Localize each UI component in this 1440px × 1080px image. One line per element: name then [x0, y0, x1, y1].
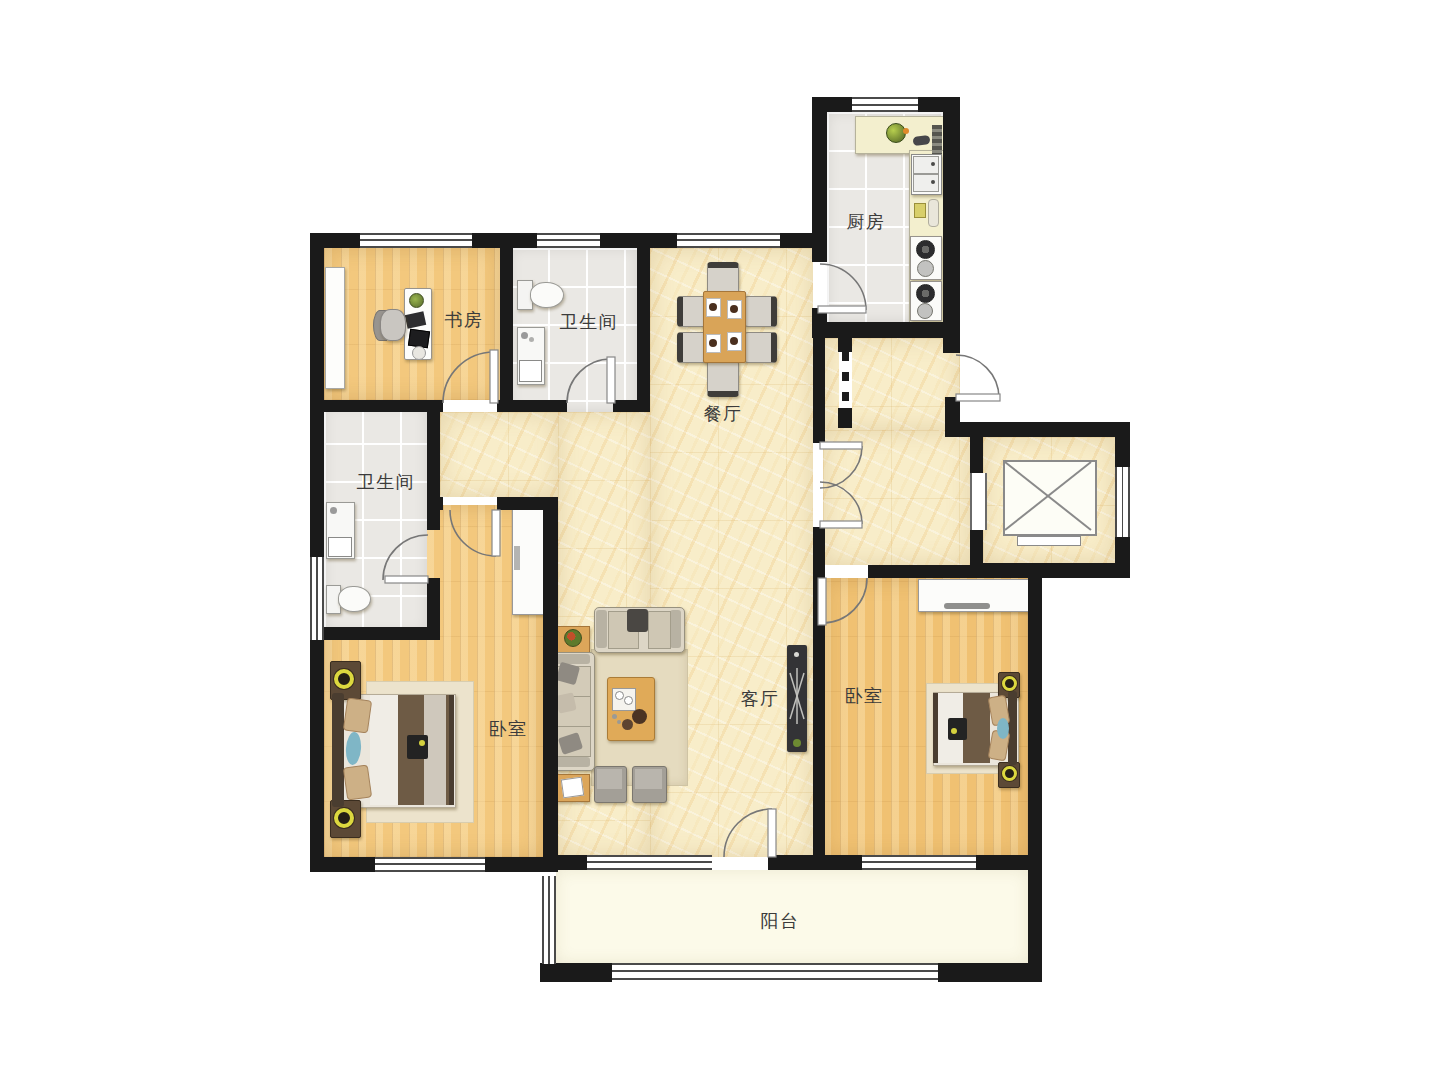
window-bathroom-left: [310, 557, 324, 640]
wall: [540, 963, 612, 982]
window-study: [360, 233, 472, 248]
lamp-icon-1: [334, 669, 354, 689]
stove-burner-dark-1: [916, 240, 935, 259]
dining-chair-right-2: [744, 332, 777, 363]
wall: [637, 248, 650, 412]
lamp-icon-3: [1002, 676, 1017, 691]
room-label-bathroom-top: 卫生间: [560, 310, 619, 334]
tea-cup-1: [615, 691, 624, 700]
wall: [485, 857, 558, 872]
toilet-bowl-top-bath: [530, 282, 564, 308]
book-icon: [561, 777, 584, 799]
floor-plan: 书房 卫生间 餐厅 厨房 卫生间 卧室 客厅 卧室 阳台: [0, 0, 1440, 1080]
window-bedroom-right: [862, 855, 976, 870]
sofa-pillow-2: [555, 692, 576, 713]
kitchen-sink-basin-1: [913, 156, 939, 174]
window-dining: [677, 233, 780, 248]
room-label-bedroom-right: 卧室: [845, 684, 884, 708]
table-dot-2: [617, 720, 621, 724]
sofa-top-cushion-2: [648, 611, 671, 649]
wall: [768, 855, 862, 870]
bed-left-pillow-2: [343, 764, 372, 800]
wall: [497, 400, 567, 412]
window-bathroom-top: [537, 233, 600, 248]
wardrobe-left-handle: [514, 546, 520, 570]
wall: [943, 97, 960, 353]
wall: [427, 497, 443, 510]
ottoman-2-top: [635, 769, 662, 789]
wall: [970, 437, 983, 473]
kitchen-board-icon: [928, 199, 939, 227]
kitchen-sink-basin-2: [913, 174, 939, 192]
opening-elevator-hall: [970, 473, 987, 530]
bed-right-blanket: [963, 693, 990, 763]
bed-left-headboard: [332, 693, 344, 807]
bowl-2: [730, 305, 738, 313]
kitchen-sink-dot-1: [931, 162, 935, 166]
lamp-icon-4: [1002, 766, 1017, 781]
wall: [838, 338, 852, 352]
window-kitchen: [852, 97, 918, 112]
wall: [813, 565, 825, 578]
sink-left-bath: [328, 537, 352, 557]
elevator-shaft: [1003, 460, 1097, 536]
toilet-bowl-left-bath: [338, 586, 371, 612]
study-cabinet: [325, 267, 345, 389]
elevator-sill: [1017, 536, 1081, 546]
bed-right-laptop-dot: [951, 728, 957, 734]
sink-top-bath: [519, 360, 542, 382]
lamp-icon-2: [334, 808, 354, 828]
bowl-1: [709, 303, 717, 311]
window-bedroom-left: [375, 857, 485, 872]
wall: [310, 400, 443, 412]
bed-left-laptop-dot: [419, 740, 425, 746]
dining-chair-bottom: [707, 360, 739, 397]
bed-left-pillow-1: [343, 697, 372, 733]
wall: [970, 530, 983, 565]
wall: [1115, 422, 1130, 467]
stove-burner-dark-2: [916, 284, 935, 303]
ottoman-1-top: [597, 769, 622, 789]
wall: [812, 97, 827, 262]
wall: [945, 397, 960, 423]
room-label-kitchen: 厨房: [847, 210, 886, 234]
sofa-top-arm-left: [596, 610, 607, 648]
bed-left-footboard: [449, 695, 454, 805]
wall: [310, 233, 324, 557]
tv-console: [787, 645, 807, 752]
wall: [600, 233, 677, 248]
balcony-railing: [612, 963, 938, 980]
room-label-balcony: 阳台: [761, 909, 800, 933]
room-label-bedroom-left: 卧室: [489, 717, 528, 741]
desk-pad-icon: [412, 346, 426, 360]
wall: [472, 233, 537, 248]
wall: [500, 248, 513, 400]
kitchen-spice-icon: [914, 203, 926, 218]
faucet-dot-2: [529, 337, 534, 342]
tv-plant-icon: [793, 739, 801, 747]
window-balcony-left: [542, 876, 556, 964]
bed-left-sheet: [370, 695, 399, 805]
teapot-small-icon: [622, 719, 633, 730]
table-dot-1: [612, 714, 617, 719]
sofa-left-arm-bottom: [555, 757, 590, 767]
window-living-balcony: [587, 855, 712, 870]
room-label-living: 客厅: [741, 687, 780, 711]
wall: [310, 640, 324, 872]
tv-dot: [794, 652, 799, 657]
faucet-dot-3: [330, 507, 337, 514]
wall: [945, 422, 1130, 437]
wall: [813, 322, 960, 338]
kitchen-orange-dot: [903, 128, 909, 134]
wall: [310, 627, 440, 640]
wall: [813, 338, 825, 443]
study-chair: [380, 309, 406, 341]
room-label-dining: 餐厅: [704, 402, 743, 426]
kitchen-sink-dot-2: [931, 180, 935, 184]
bed-right-blue-pillow: [997, 718, 1009, 739]
wall: [868, 565, 1030, 578]
sofa-top-dark-cushion: [627, 609, 648, 632]
dining-chair-right-1: [744, 296, 777, 327]
kitchen-rack-icon: [932, 125, 942, 155]
bed-left-laptop-icon: [407, 735, 428, 759]
wall: [310, 857, 375, 872]
floor-corridor: [823, 430, 970, 565]
window-elevator-hall: [1115, 467, 1130, 537]
tea-cup-2: [624, 696, 633, 705]
room-label-bathroom-left: 卫生间: [357, 470, 416, 494]
desk-plant-icon: [409, 293, 424, 308]
sofa-top-arm-right: [670, 610, 681, 648]
wall: [938, 963, 1042, 982]
opening-dashed-foyer: [839, 352, 852, 408]
floor-hall-strip: [440, 412, 558, 497]
wall: [427, 412, 440, 530]
bed-right-headboard: [1008, 691, 1017, 765]
stove-burner-gray-2: [917, 303, 933, 319]
bowl-3: [709, 339, 717, 347]
wall: [838, 408, 852, 428]
wall: [543, 497, 558, 870]
wall: [1028, 565, 1042, 982]
bowl-4: [730, 337, 738, 345]
wall: [613, 400, 650, 412]
teapot-icon: [632, 709, 647, 724]
stove-burner-gray-1: [917, 260, 934, 277]
door-entrance: [956, 355, 1000, 401]
corner-plant-icon: [564, 629, 582, 647]
faucet-dot: [521, 332, 528, 339]
wardrobe-right-handle: [944, 603, 990, 609]
room-label-study: 书房: [445, 308, 484, 332]
